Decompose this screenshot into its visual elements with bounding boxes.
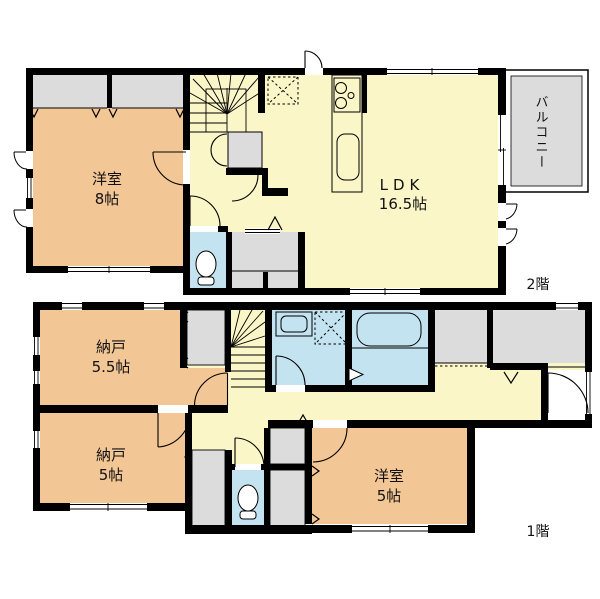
label-nando5-name: 納戸	[96, 446, 126, 464]
bathroom	[352, 310, 428, 385]
floor-1f: 納戸 5.5帖 納戸 5帖 洋室 5帖 1階	[33, 302, 592, 540]
closet-entry-1	[435, 310, 487, 363]
window-casement-left-2	[14, 209, 33, 227]
closet-nando55	[187, 310, 225, 365]
window-balcony-slider	[498, 115, 506, 185]
room-yoshitsu-8	[30, 108, 183, 268]
window-left-1f-2	[33, 371, 40, 384]
closet-2f-right	[111, 74, 183, 108]
window-awning-right-1	[498, 203, 517, 221]
window-top-nando55-1	[62, 302, 82, 310]
label-ldk-size: 16.5帖	[379, 195, 427, 213]
window-awning-right-2	[498, 228, 517, 246]
window-nando5-bottom	[70, 503, 147, 511]
toilet-icon-2f	[196, 251, 216, 285]
window-ldk-bottom	[350, 288, 420, 295]
toilet-icon-1f	[238, 485, 258, 519]
floor-plan-page: 洋室 8帖 LDK 16.5帖 バルコニー 2階	[0, 0, 600, 599]
window-yoshitsu8-bottom	[68, 266, 150, 273]
window-left-1f-1	[33, 337, 40, 355]
window-left-1f-3	[33, 431, 40, 448]
window-top-entrance	[556, 302, 578, 310]
door-top-exterior	[305, 51, 323, 75]
door-storage-slider	[245, 228, 280, 234]
entrance	[548, 370, 585, 428]
label-floor-1f: 1階	[527, 524, 550, 540]
washroom	[272, 310, 345, 385]
label-nando55-name: 納戸	[96, 338, 126, 356]
closet-2f-hall	[228, 132, 262, 168]
label-floor-2f: 2階	[527, 277, 550, 293]
closet-entry-2	[493, 310, 585, 363]
window-casement-left-1	[14, 151, 33, 169]
label-yoshitsu8-name: 洋室	[92, 170, 122, 188]
floor-plan-drawing: 洋室 8帖 LDK 16.5帖 バルコニー 2階	[0, 0, 600, 599]
label-nando55-size: 5.5帖	[92, 358, 131, 376]
window-left-straight	[26, 178, 33, 198]
label-balcony: バルコニー	[533, 95, 549, 170]
label-ldk-name: LDK	[380, 176, 425, 194]
window-top-ldk	[387, 68, 478, 75]
label-nando5-size: 5帖	[99, 466, 124, 484]
window-top-nando55-2	[144, 302, 164, 310]
label-yoshitsu5-size: 5帖	[377, 487, 402, 505]
label-yoshitsu5-name: 洋室	[374, 467, 404, 485]
closet-nando5	[192, 450, 225, 526]
closet-yoshitsu5-bottom	[270, 470, 305, 526]
closet-2f-left	[30, 74, 107, 108]
window-yoshitsu5-bottom	[352, 525, 428, 533]
closet-yoshitsu5-top	[270, 428, 305, 464]
label-yoshitsu8-size: 8帖	[95, 190, 120, 208]
floor-2f: 洋室 8帖 LDK 16.5帖 バルコニー 2階	[14, 51, 588, 295]
